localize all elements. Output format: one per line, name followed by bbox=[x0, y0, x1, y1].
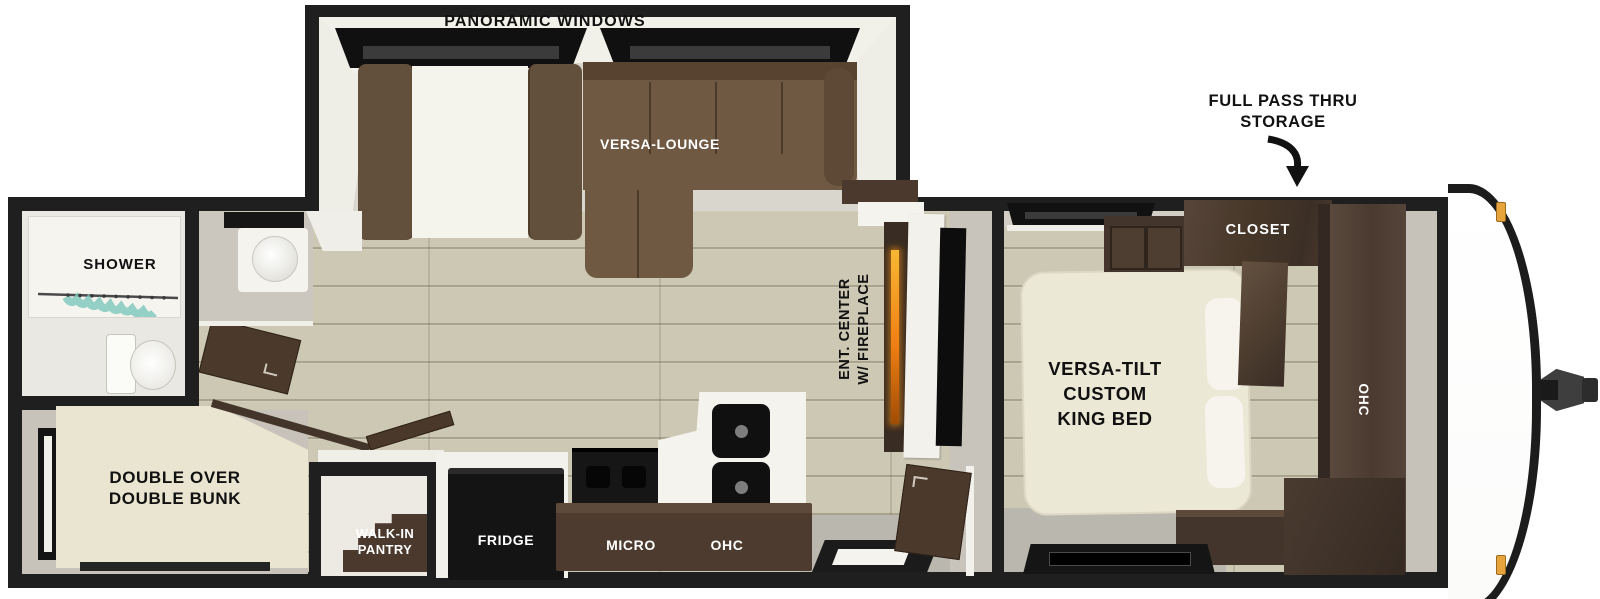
versa-lounge-sectional bbox=[583, 62, 857, 190]
versa-lounge-chaise bbox=[585, 190, 693, 278]
window-glass bbox=[1049, 552, 1191, 566]
entry-door bbox=[894, 464, 972, 560]
window-glass bbox=[363, 46, 559, 59]
closet-wardrobe-door bbox=[1238, 261, 1288, 387]
versa-lounge-label: VERSA-LOUNGE bbox=[560, 136, 760, 153]
sofa-bed-mattress bbox=[412, 66, 528, 238]
marker-light-top bbox=[1496, 202, 1506, 222]
cabinet-door bbox=[1146, 226, 1182, 270]
storage-callout-arrow bbox=[1264, 133, 1320, 191]
window-glass bbox=[630, 46, 830, 59]
ent-overhead-shelf bbox=[842, 180, 918, 204]
micro-label: MICRO bbox=[581, 537, 681, 554]
double-bunk-label: DOUBLE OVER DOUBLE BUNK bbox=[75, 467, 275, 509]
rv-floorplan: PANORAMIC WINDOWS VERSA-LOUNGE SHOWER bbox=[0, 0, 1600, 599]
kitchen-ohc-label: OHC bbox=[677, 537, 777, 554]
bedroom-right-wall bbox=[1405, 211, 1437, 572]
door-handle bbox=[263, 363, 279, 376]
sofa-bed bbox=[358, 64, 580, 240]
hitch-bar bbox=[1582, 378, 1598, 402]
bed-pillow bbox=[1204, 395, 1245, 488]
fridge bbox=[448, 468, 564, 580]
sectional-right-arm bbox=[824, 68, 854, 186]
ent-center-label: ENT. CENTER W/ FIREPLACE bbox=[836, 229, 874, 429]
vanity-sink-basin bbox=[252, 236, 298, 282]
door-handle bbox=[912, 476, 927, 489]
shower-label: SHOWER bbox=[45, 256, 195, 274]
bunk-edge-trim bbox=[80, 562, 270, 571]
closet-label: CLOSET bbox=[1184, 222, 1332, 239]
bunkroom-window bbox=[38, 428, 58, 560]
sectional-backrest bbox=[583, 62, 857, 80]
panoramic-windows-label: PANORAMIC WINDOWS bbox=[420, 13, 670, 32]
panoramic-window-left bbox=[335, 28, 587, 68]
full-pass-thru-storage-label: FULL PASS THRU STORAGE bbox=[1183, 91, 1383, 133]
nook-window bbox=[224, 212, 304, 228]
marker-light-bottom bbox=[1496, 555, 1506, 575]
bed-overhead-cabinet bbox=[1104, 216, 1184, 272]
sink-drain bbox=[735, 481, 748, 494]
cushion-seam bbox=[637, 190, 639, 278]
burner bbox=[622, 466, 646, 488]
cabinet-door bbox=[1110, 226, 1146, 270]
hitch-notch bbox=[1540, 380, 1558, 400]
burner bbox=[586, 466, 610, 488]
walk-in-pantry-label: WALK-IN PANTRY bbox=[338, 526, 432, 558]
fireplace-flame bbox=[891, 250, 899, 424]
sofa-bed-left-arm bbox=[358, 64, 414, 240]
window-glass bbox=[44, 436, 52, 552]
tv-panel bbox=[936, 228, 967, 446]
bedroom-wardrobe bbox=[1284, 478, 1405, 575]
shower-curtain bbox=[36, 287, 182, 317]
kitchen-sink-basin-1 bbox=[712, 404, 770, 458]
king-bed-label: VERSA-TILT CUSTOM KING BED bbox=[1005, 356, 1205, 431]
sink-drain bbox=[735, 425, 748, 438]
fridge-label: FRIDGE bbox=[456, 532, 556, 549]
bedroom-bottom-window bbox=[1023, 544, 1215, 574]
front-cap bbox=[1448, 184, 1541, 599]
bedroom-ohc-label: OHC bbox=[1355, 368, 1371, 432]
cushion-seam bbox=[781, 82, 783, 154]
toilet-bowl bbox=[130, 340, 176, 390]
